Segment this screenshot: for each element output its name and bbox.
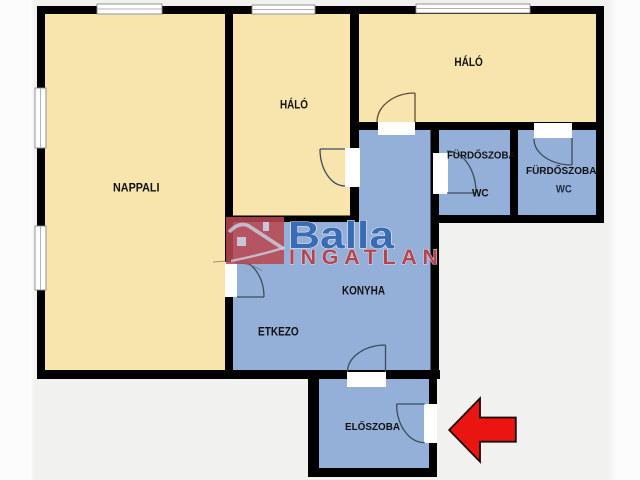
svg-text:INGATLAN: INGATLAN [289, 245, 438, 269]
svg-text:WC: WC [556, 184, 572, 196]
svg-text:NAPPALI: NAPPALI [113, 181, 160, 195]
svg-text:WC: WC [472, 188, 489, 200]
svg-text:HÁLÓ: HÁLÓ [454, 55, 482, 69]
svg-text:ETKEZO: ETKEZO [258, 325, 299, 338]
svg-text:ELŐSZOBA: ELŐSZOBA [345, 420, 400, 433]
svg-text:FÜRDŐSZOBA: FÜRDŐSZOBA [447, 149, 516, 162]
svg-text:KONYHA: KONYHA [342, 285, 385, 298]
svg-text:HÁLÓ: HÁLÓ [280, 98, 308, 112]
svg-text:FÜRDŐSZOBA: FÜRDŐSZOBA [526, 164, 597, 177]
